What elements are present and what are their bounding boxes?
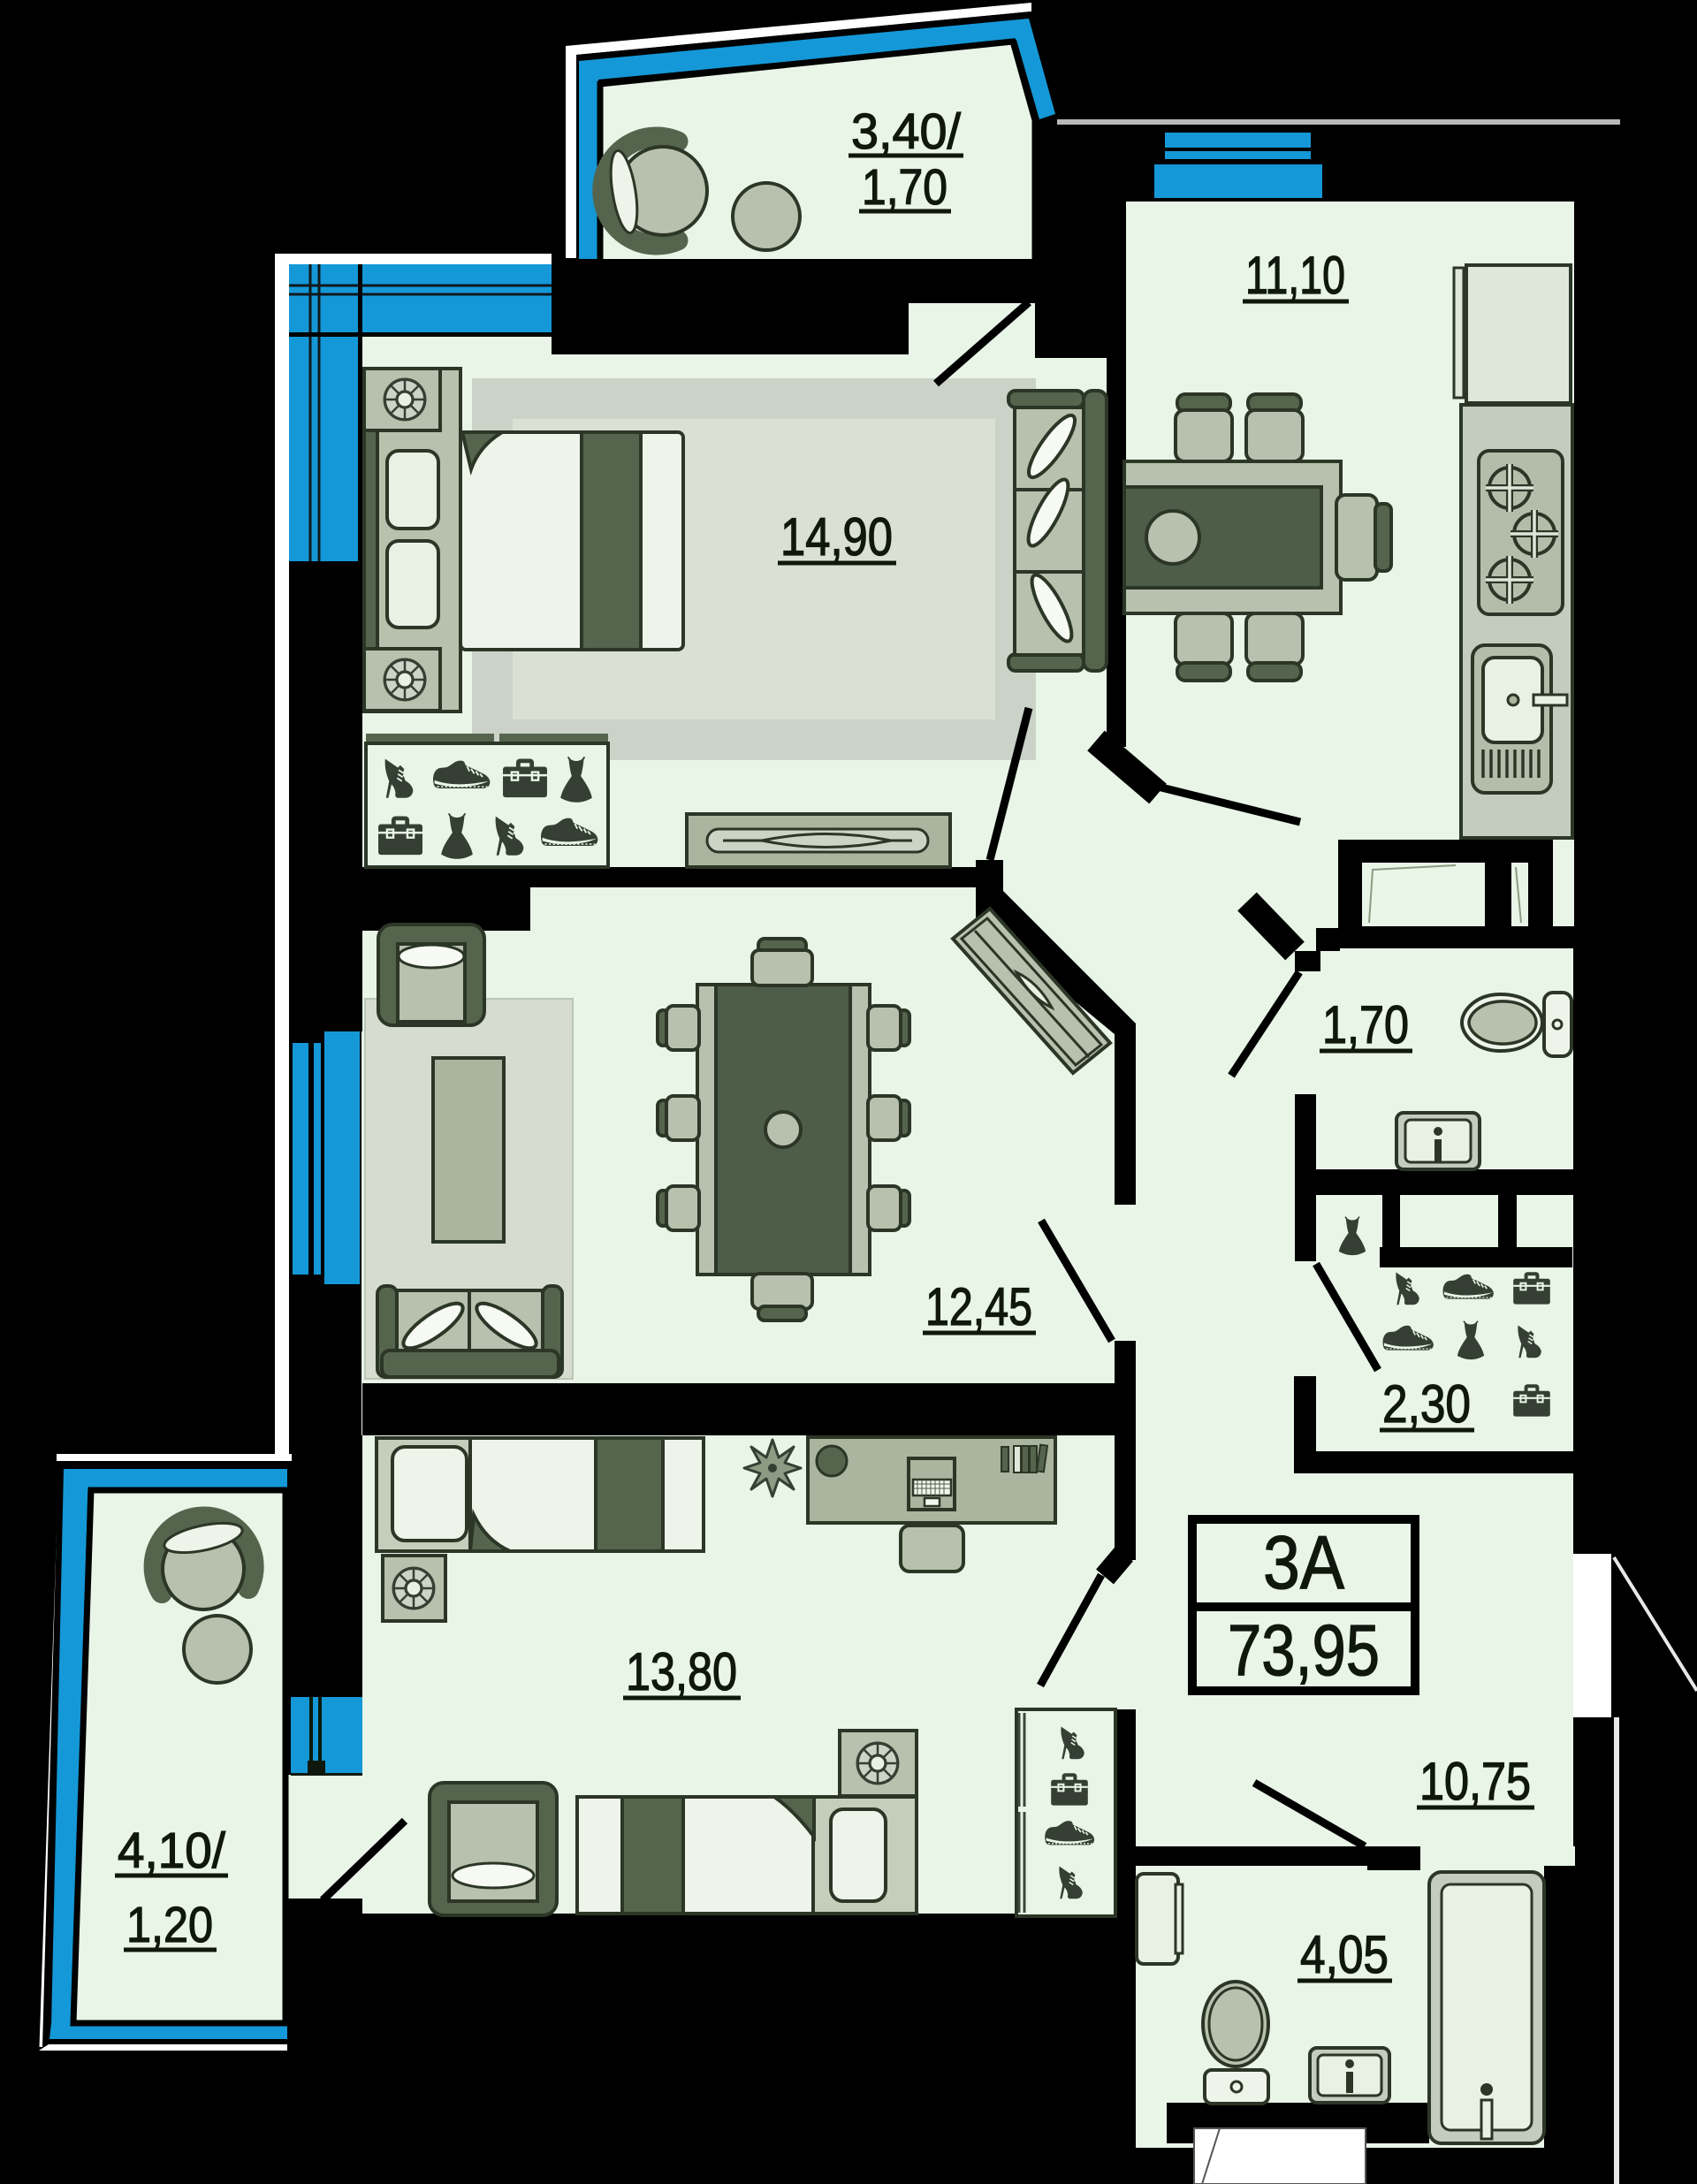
svg-text:10,75: 10,75 xyxy=(1419,1752,1531,1811)
svg-text:1,70: 1,70 xyxy=(862,159,947,216)
svg-text:1,20: 1,20 xyxy=(126,1897,213,1953)
svg-text:3,40/: 3,40/ xyxy=(851,103,961,160)
svg-text:12,45: 12,45 xyxy=(925,1277,1032,1336)
svg-text:1,70: 1,70 xyxy=(1322,995,1409,1054)
svg-text:4,10/: 4,10/ xyxy=(118,1823,225,1879)
svg-text:73,95: 73,95 xyxy=(1228,1610,1380,1691)
svg-text:3A: 3A xyxy=(1263,1521,1344,1605)
svg-text:2,30: 2,30 xyxy=(1382,1374,1471,1434)
svg-text:14,90: 14,90 xyxy=(780,507,893,567)
svg-text:13,80: 13,80 xyxy=(626,1642,737,1701)
svg-text:4,05: 4,05 xyxy=(1300,1925,1389,1984)
svg-text:11,10: 11,10 xyxy=(1245,246,1345,305)
